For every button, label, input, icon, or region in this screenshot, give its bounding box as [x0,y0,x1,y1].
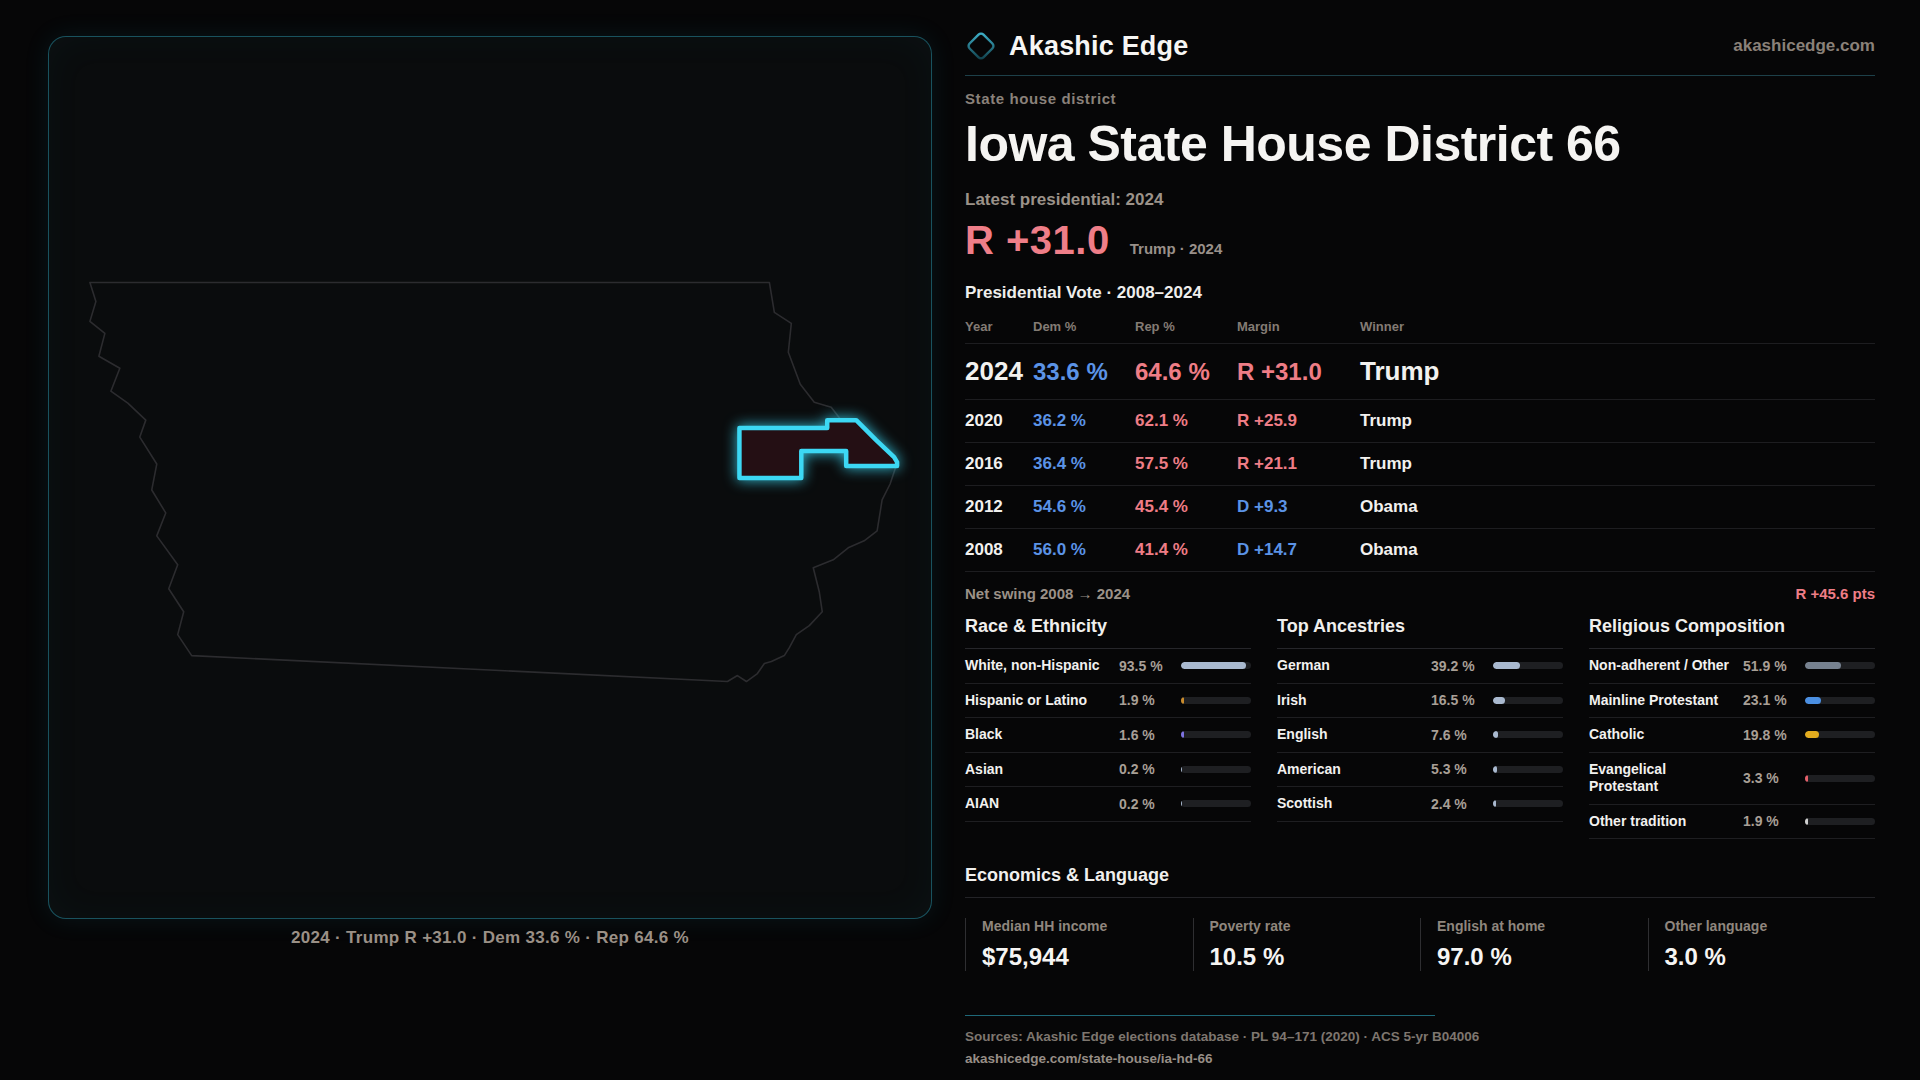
stat-poverty-rate: Poverty rate10.5 % [1193,918,1421,971]
result-row-2008: 200856.0 %41.4 %D +14.7Obama [965,529,1875,572]
result-dem-pct: 33.6 % [1033,358,1135,386]
demo-label: German [1277,657,1423,675]
demo-bar-track [1805,697,1875,704]
demo-bar-fill [1805,662,1841,669]
panel-title-religious-composition: Religious Composition [1589,616,1875,649]
net-swing-value: R +45.6 pts [1795,585,1875,602]
demo-label: Catholic [1589,726,1735,744]
net-swing-label: Net swing 2008 → 2024 [965,585,1130,602]
demo-bar-fill [1805,818,1808,825]
column-header-rep: Rep % [1135,319,1237,334]
demo-row-american: American5.3 % [1277,753,1563,788]
demo-value: 39.2 % [1431,658,1485,674]
demo-label: Irish [1277,692,1423,710]
result-winner: Trump [1360,356,1875,387]
demo-label: Mainline Protestant [1589,692,1735,710]
results-header-row: YearDem %Rep %MarginWinner [965,313,1875,344]
demo-bar-track [1181,800,1251,807]
map-caption: 2024 · Trump R +31.0 · Dem 33.6 % · Rep … [48,928,932,948]
result-margin: R +21.1 [1237,454,1360,474]
panel-race-ethnicity: Race & EthnicityWhite, non-Hispanic93.5 … [965,616,1251,822]
page-title: Iowa State House District 66 [965,115,1875,173]
stat-label: Poverty rate [1210,918,1421,934]
demo-label: Hispanic or Latino [965,692,1111,710]
stat-median-hh-income: Median HH income$75,944 [965,918,1193,971]
result-margin: R +25.9 [1237,411,1360,431]
presidential-results-table: YearDem %Rep %MarginWinner202433.6 %64.6… [965,313,1875,572]
demo-value: 51.9 % [1743,658,1797,674]
latest-presidential-label: Latest presidential: 2024 [965,190,1875,210]
demo-bar-fill [1493,662,1520,669]
stat-label: English at home [1437,918,1648,934]
demo-label: White, non-Hispanic [965,657,1111,675]
result-row-2012: 201254.6 %45.4 %D +9.3Obama [965,486,1875,529]
state-outline-iowa [90,282,897,681]
demo-bar-fill [1493,731,1498,738]
demo-value: 16.5 % [1431,692,1485,708]
demo-bar-track [1805,818,1875,825]
demo-value: 1.6 % [1119,727,1173,743]
headline-margin-context: Trump · 2024 [1130,240,1223,257]
column-header-year: Year [965,319,1033,334]
demo-label: Asian [965,761,1111,779]
demo-row-black: Black1.6 % [965,718,1251,753]
demo-value: 2.4 % [1431,796,1485,812]
demo-bar-fill [1181,800,1182,807]
result-rep-pct: 41.4 % [1135,540,1237,560]
sources-line: Sources: Akashic Edge elections database… [965,1029,1875,1044]
demo-row-asian: Asian0.2 % [965,753,1251,788]
demo-bar-fill [1805,697,1821,704]
column-header-margin: Margin [1237,319,1360,334]
stat-label: Other language [1665,918,1876,934]
result-rep-pct: 57.5 % [1135,454,1237,474]
headline-margin-value: R +31.0 [965,218,1110,263]
demo-value: 1.9 % [1743,813,1797,829]
result-winner: Obama [1360,497,1875,517]
results-section-title: Presidential Vote · 2008–2024 [965,283,1875,303]
demo-bar-fill [1181,731,1184,738]
demo-bar-track [1181,697,1251,704]
header: Akashic Edge akashicedge.com [965,30,1875,62]
economics-section-title: Economics & Language [965,865,1875,886]
stat-value: 10.5 % [1210,943,1421,971]
demo-row-other-tradition: Other tradition1.9 % [1589,805,1875,840]
demographics-panels: Race & EthnicityWhite, non-Hispanic93.5 … [965,616,1875,839]
demo-bar-fill [1181,662,1246,669]
result-dem-pct: 36.2 % [1033,411,1135,431]
demo-value: 5.3 % [1431,761,1485,777]
demo-bar-fill [1493,800,1496,807]
demo-bar-fill [1805,731,1819,738]
brand-name: Akashic Edge [1009,31,1188,62]
demo-value: 0.2 % [1119,761,1173,777]
demo-bar-track [1493,697,1563,704]
demo-row-aian: AIAN0.2 % [965,787,1251,822]
demo-value: 3.3 % [1743,770,1797,786]
demo-bar-fill [1493,766,1497,773]
demo-label: Non-adherent / Other [1589,657,1735,675]
panel-top-ancestries: Top AncestriesGerman39.2 %Irish16.5 %Eng… [1277,616,1563,822]
brand-domain-link[interactable]: akashicedge.com [1733,36,1875,56]
demo-row-irish: Irish16.5 % [1277,684,1563,719]
result-winner: Trump [1360,411,1875,431]
demo-value: 0.2 % [1119,796,1173,812]
demo-label: Other tradition [1589,813,1735,831]
demo-row-german: German39.2 % [1277,649,1563,684]
demo-value: 7.6 % [1431,727,1485,743]
district-map-panel [48,36,932,919]
stat-label: Median HH income [982,918,1193,934]
demo-bar-track [1181,766,1251,773]
result-year: 2016 [965,454,1033,474]
demo-row-scottish: Scottish2.4 % [1277,787,1563,822]
result-year: 2008 [965,540,1033,560]
result-rep-pct: 62.1 % [1135,411,1237,431]
demo-bar-track [1805,662,1875,669]
result-year: 2012 [965,497,1033,517]
demo-row-mainline-protestant: Mainline Protestant23.1 % [1589,684,1875,719]
footer-divider [965,1015,1435,1016]
result-rep-pct: 64.6 % [1135,358,1237,386]
demo-bar-track [1181,662,1251,669]
demo-bar-fill [1493,697,1505,704]
demo-value: 19.8 % [1743,727,1797,743]
result-row-2016: 201636.4 %57.5 %R +21.1Trump [965,443,1875,486]
demo-label: Black [965,726,1111,744]
demo-bar-track [1805,775,1875,782]
result-row-2020: 202036.2 %62.1 %R +25.9Trump [965,400,1875,443]
demo-row-hispanic-or-latino: Hispanic or Latino1.9 % [965,684,1251,719]
iowa-map [49,37,931,918]
result-margin: R +31.0 [1237,358,1360,386]
stat-value: 3.0 % [1665,943,1876,971]
demo-row-white-non-hispanic: White, non-Hispanic93.5 % [965,649,1251,684]
panel-title-top-ancestries: Top Ancestries [1277,616,1563,649]
demo-bar-fill [1805,775,1808,782]
permalink[interactable]: akashicedge.com/state-house/ia-hd-66 [965,1051,1875,1066]
demo-value: 23.1 % [1743,692,1797,708]
stat-other-language: Other language3.0 % [1648,918,1876,971]
demo-row-non-adherent-other: Non-adherent / Other51.9 % [1589,649,1875,684]
demo-bar-track [1493,662,1563,669]
demo-bar-track [1493,766,1563,773]
demo-bar-track [1493,800,1563,807]
demo-row-evangelical-protestant: Evangelical Protestant3.3 % [1589,753,1875,805]
stat-value: 97.0 % [1437,943,1648,971]
stat-value: $75,944 [982,943,1193,971]
result-year: 2024 [965,356,1033,387]
stat-english-at-home: English at home97.0 % [1420,918,1648,971]
result-dem-pct: 56.0 % [1033,540,1135,560]
result-margin: D +14.7 [1237,540,1360,560]
result-dem-pct: 36.4 % [1033,454,1135,474]
result-year: 2020 [965,411,1033,431]
column-header-dem: Dem % [1033,319,1135,334]
demo-value: 93.5 % [1119,658,1173,674]
demo-label: AIAN [965,795,1111,813]
district-shape-highlight[interactable] [739,420,897,478]
panel-title-race-ethnicity: Race & Ethnicity [965,616,1251,649]
demo-bar-fill [1181,697,1184,704]
demo-label: English [1277,726,1423,744]
demo-bar-track [1805,731,1875,738]
brand-diamond-icon [965,30,997,62]
result-winner: Trump [1360,454,1875,474]
result-dem-pct: 54.6 % [1033,497,1135,517]
demo-bar-fill [1181,766,1182,773]
kicker: State house district [965,90,1875,107]
result-margin: D +9.3 [1237,497,1360,517]
demo-row-english: English7.6 % [1277,718,1563,753]
result-rep-pct: 45.4 % [1135,497,1237,517]
demo-label: Evangelical Protestant [1589,761,1735,796]
column-header-winner: Winner [1360,319,1875,334]
economics-stats: Median HH income$75,944Poverty rate10.5 … [965,918,1875,971]
demo-bar-track [1181,731,1251,738]
demo-value: 1.9 % [1119,692,1173,708]
demo-label: Scottish [1277,795,1423,813]
net-swing-row: Net swing 2008 → 2024 R +45.6 pts [965,572,1875,604]
demo-bar-track [1493,731,1563,738]
economics-divider [965,897,1875,898]
header-divider [965,75,1875,76]
result-row-2024: 202433.6 %64.6 %R +31.0Trump [965,344,1875,400]
demo-label: American [1277,761,1423,779]
panel-religious-composition: Religious CompositionNon-adherent / Othe… [1589,616,1875,839]
demo-row-catholic: Catholic19.8 % [1589,718,1875,753]
headline-margin-block: R +31.0 Trump · 2024 [965,218,1875,263]
district-report: Akashic Edge akashicedge.com State house… [965,0,1875,1066]
result-winner: Obama [1360,540,1875,560]
